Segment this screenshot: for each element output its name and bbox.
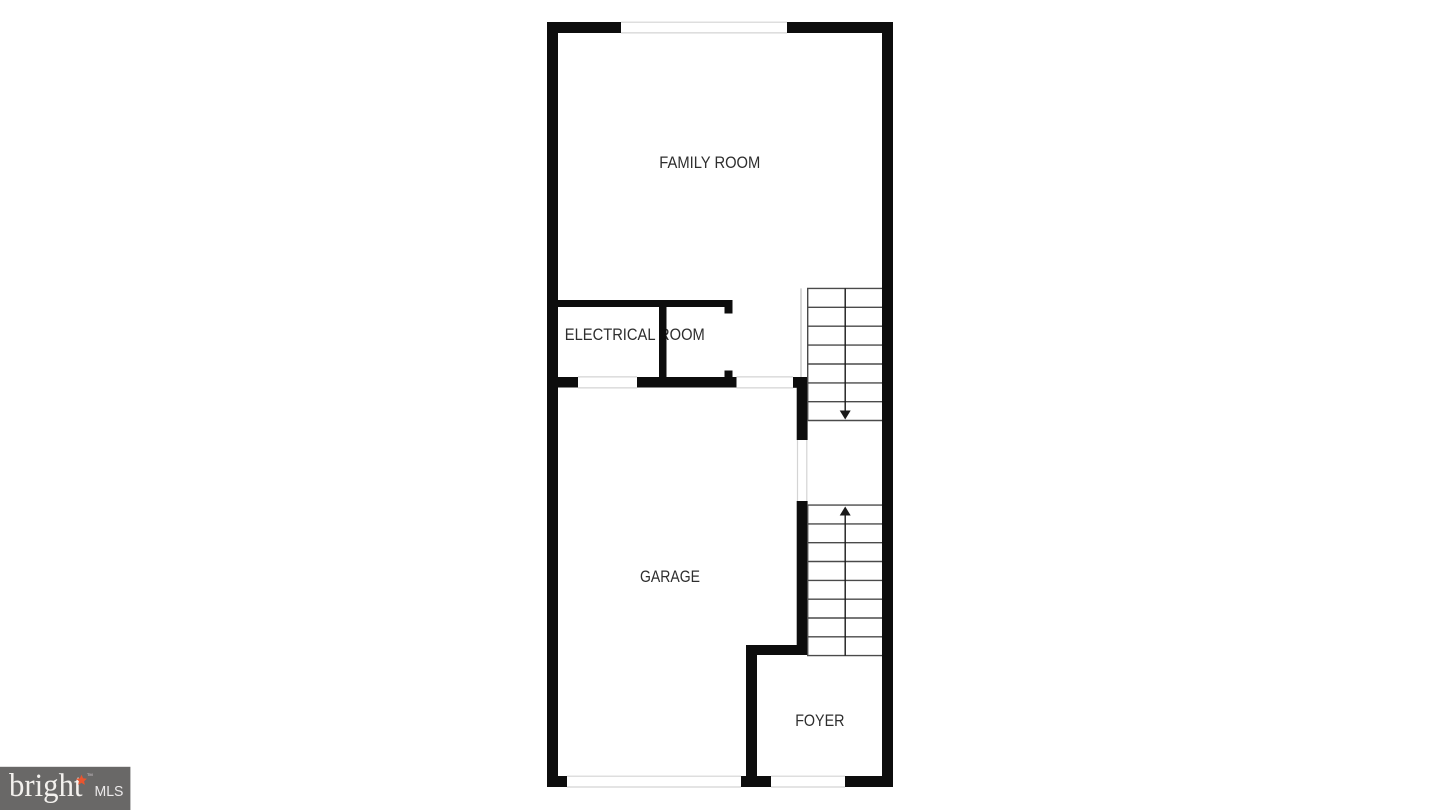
svg-text:GARAGE: GARAGE [640,567,700,586]
svg-text:FAMILY ROOM: FAMILY ROOM [659,153,760,172]
svg-text:FOYER: FOYER [795,711,844,730]
svg-text:bright: bright [9,768,83,804]
svg-text:ELECTRICAL ROOM: ELECTRICAL ROOM [565,325,705,344]
svg-text:MLS: MLS [95,783,124,800]
svg-text:™: ™ [87,773,94,780]
